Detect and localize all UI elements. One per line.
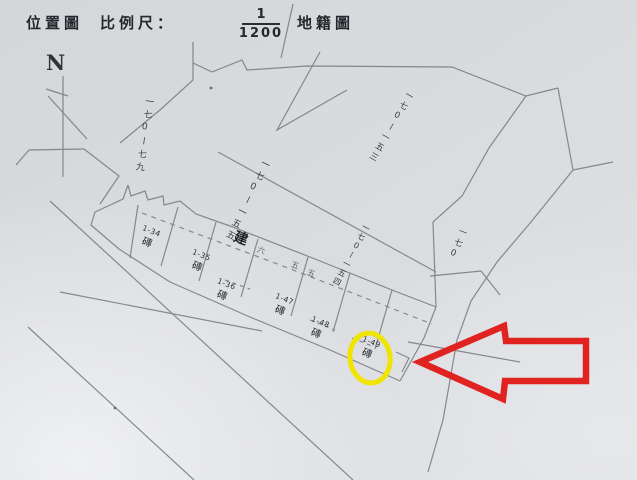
map-linework: [0, 0, 637, 480]
cadastral-map-scan: 位置圖 比例尺： 1 1200 地籍圖 N 一七0ー七九 一七0ー一五五 一七0…: [0, 0, 637, 480]
pointer-arrow: [420, 326, 586, 399]
north-indicator: N: [46, 52, 65, 74]
boundary-lines: [16, 4, 613, 480]
scale-fraction: 1 1200: [234, 3, 288, 41]
map-title-left: 位置圖: [26, 16, 83, 32]
map-title-right: 地籍圖: [297, 16, 354, 32]
scale-label: 比例尺：: [100, 16, 176, 32]
scale-denominator: 1200: [234, 25, 288, 41]
scale-numerator: 1: [242, 7, 279, 25]
scan-layer: 位置圖 比例尺： 1 1200 地籍圖 N 一七0ー七九 一七0ー一五五 一七0…: [0, 0, 637, 480]
